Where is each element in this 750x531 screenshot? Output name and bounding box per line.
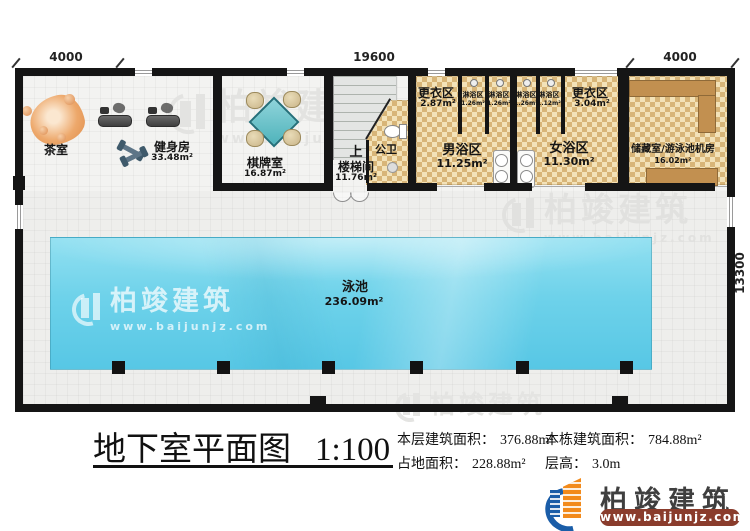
room-area-women-bath: 11.30m² <box>543 156 594 167</box>
storage-counter-right <box>698 95 716 133</box>
stone-icon <box>57 133 66 142</box>
room-label-dressing-men: 更衣区 <box>418 87 454 99</box>
watermark: 柏竣建筑 www.baijunjz.com <box>110 288 270 332</box>
room-label-men-bath: 男浴区 <box>442 144 481 157</box>
column <box>310 396 326 406</box>
washbasin-icon <box>520 154 533 167</box>
stair-direction-label: 上 <box>349 146 362 159</box>
dimension-tick <box>115 58 124 68</box>
floorplan-canvas: 4000 19600 4000 13300 柏竣建筑 www.baijunjz.… <box>0 0 750 531</box>
stat-building-area: 本栋建筑面积：784.88m² <box>545 429 702 449</box>
window <box>727 197 735 227</box>
room-label-storage: 储藏室/游泳池机房 <box>631 145 715 155</box>
stat-land-area-value: 228.88m² <box>472 457 526 472</box>
dimension-tick <box>730 58 739 68</box>
stone-icon <box>22 106 32 116</box>
column <box>112 361 125 374</box>
window <box>287 68 304 76</box>
column <box>620 361 633 374</box>
room-label-tea: 茶室 <box>44 144 68 156</box>
shower-head-icon <box>496 79 504 87</box>
brand-logo-building-orange <box>563 478 581 518</box>
window <box>15 205 23 229</box>
room-label-shower-2: 淋浴区 <box>489 92 510 99</box>
washbasin-icon <box>520 170 533 183</box>
room-area-pool: 236.09m² <box>325 296 384 307</box>
drawing-scale: 1:100 <box>315 432 390 468</box>
column <box>322 361 335 374</box>
wall-toilet-dressing <box>408 76 416 183</box>
room-label-gym: 健身房 <box>154 141 190 153</box>
room-area-dressing-men: 2.87m² <box>420 100 456 109</box>
room-area-shower-4: 1.12m² <box>537 101 561 107</box>
washbasin-icon <box>495 154 508 167</box>
wall-chess-stair <box>324 76 333 183</box>
room-label-dressing-women: 更衣区 <box>572 87 608 99</box>
stat-land-area: 占地面积：228.88m² <box>397 453 526 473</box>
dimension-top-right: 4000 <box>663 50 696 64</box>
window <box>428 68 445 76</box>
stat-floor-area: 本层建筑面积：376.88m² <box>397 429 554 449</box>
room-area-shower-1: 1.26m² <box>461 101 485 107</box>
wall-storage-bottom <box>629 183 715 191</box>
shower-head-icon <box>523 79 531 87</box>
room-label-chess: 棋牌室 <box>247 157 283 169</box>
stat-building-area-value: 784.88m² <box>648 433 702 448</box>
room-area-chess: 16.87m² <box>244 170 286 179</box>
stat-floor-height: 层高：3.0m <box>545 453 620 473</box>
room-label-pool: 泳池 <box>342 281 368 294</box>
wall-bath-bottom <box>585 183 629 191</box>
wall-gym-chess <box>213 76 222 183</box>
chair-icon <box>283 129 301 146</box>
stat-floor-height-value: 3.0m <box>592 457 620 472</box>
chair-icon <box>246 130 264 147</box>
floor-drain-icon <box>387 162 398 173</box>
chair-icon <box>283 91 301 108</box>
wall-chess-bottom <box>213 183 333 191</box>
room-area-stairwell: 11.76m² <box>335 174 377 183</box>
column <box>410 361 423 374</box>
room-area-men-bath: 11.25m² <box>436 158 487 169</box>
shower-partition <box>561 76 565 134</box>
watermark-text: 柏竣建筑 <box>110 288 270 315</box>
watermark-logo-icon <box>502 194 538 230</box>
drawing-title-text: 地下室平面图 <box>93 432 291 468</box>
wall-women-storage <box>618 76 629 183</box>
stat-floor-area-label: 本层建筑面积： <box>397 433 495 448</box>
watermark-url: www.baijunjz.com <box>110 321 270 332</box>
stat-land-area-label: 占地面积： <box>397 457 467 472</box>
watermark-text: 柏竣建筑 <box>544 193 715 226</box>
window <box>135 68 152 76</box>
wall-toilet-bottom <box>367 183 437 191</box>
watermark-logo-icon <box>72 290 104 322</box>
room-label-toilet: 公卫 <box>375 144 397 155</box>
room-area-shower-3: 1.26m² <box>514 101 538 107</box>
stone-icon <box>64 94 75 105</box>
wall-top <box>15 68 735 76</box>
room-label-shower-3: 淋浴区 <box>516 92 537 99</box>
shower-head-icon <box>470 79 478 87</box>
column <box>13 176 25 190</box>
wall-bath-bottom <box>484 183 532 191</box>
room-label-shower-4: 淋浴区 <box>539 92 560 99</box>
shower-head-icon <box>547 79 555 87</box>
dimension-top-center: 19600 <box>353 50 395 64</box>
title-underline <box>93 465 393 468</box>
room-area-storage: 16.02m² <box>654 157 691 165</box>
drawing-title: 地下室平面图1:100 <box>93 422 390 470</box>
dimension-top-left: 4000 <box>49 50 82 64</box>
door-opening <box>437 186 484 187</box>
room-label-women-bath: 女浴区 <box>549 142 588 155</box>
treadmill-icon <box>146 106 180 128</box>
stone-icon <box>39 126 48 135</box>
treadmill-icon <box>98 106 132 128</box>
wall-left <box>15 68 23 412</box>
room-area-dressing-women: 3.04m² <box>574 100 610 109</box>
toilet-tank-icon <box>399 124 407 139</box>
column <box>217 361 230 374</box>
room-area-shower-2: 1.26m² <box>487 101 511 107</box>
room-area-gym: 33.48m² <box>151 154 193 163</box>
stat-building-area-label: 本栋建筑面积： <box>545 433 643 448</box>
brand-logo-building-blue <box>550 490 560 517</box>
window <box>575 68 617 76</box>
dimension-right-side: 13300 <box>733 243 747 303</box>
stat-floor-height-label: 层高： <box>545 457 587 472</box>
chair-icon <box>246 92 264 109</box>
room-label-stairwell: 楼梯间 <box>338 161 374 173</box>
column <box>516 361 529 374</box>
room-label-shower-1: 淋浴区 <box>463 92 484 99</box>
door-opening <box>715 186 727 187</box>
column <box>612 396 628 406</box>
door-opening <box>532 186 585 187</box>
dimension-tick <box>625 58 634 68</box>
washbasin-icon <box>495 170 508 183</box>
brand-website: www.baijunjz.com <box>600 509 740 526</box>
wall-right <box>727 68 735 412</box>
dimension-tick <box>11 58 20 68</box>
